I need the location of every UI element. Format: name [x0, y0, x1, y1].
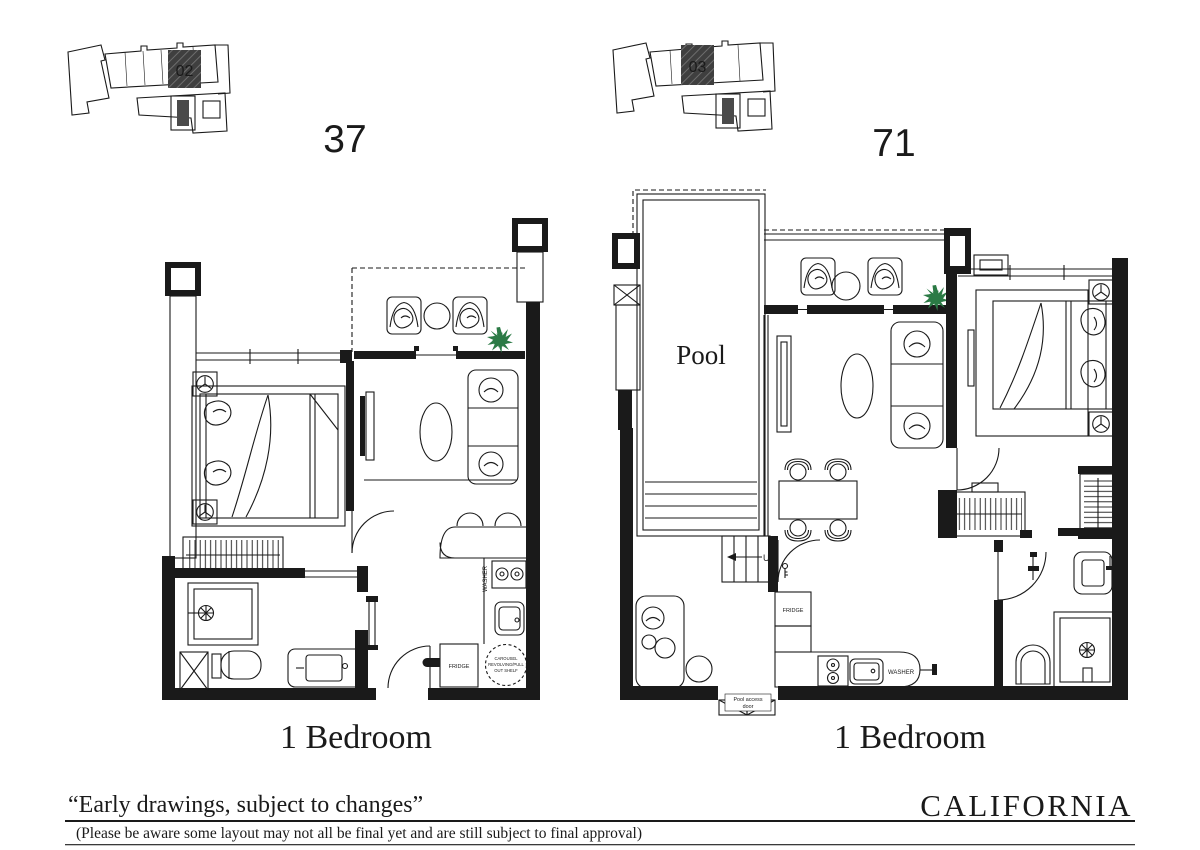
- plan-number-71: 71: [872, 122, 915, 165]
- wardrobe: [938, 466, 1118, 580]
- curtain-box: [974, 255, 1008, 275]
- pool-label: Pool: [676, 340, 726, 370]
- key-plan-left: 02 37: [68, 43, 367, 161]
- footer-disclaimer: (Please be aware some layout may not all…: [76, 825, 642, 842]
- bed: [200, 394, 338, 518]
- side-table: [686, 656, 712, 682]
- downlight-symbol: [1089, 412, 1113, 436]
- shower: [1054, 612, 1116, 688]
- kitchen: WASHER FRIDGE CAROUSEL REVOLVING/PULL OU…: [440, 513, 528, 687]
- fridge: FRIDGE: [775, 592, 811, 626]
- carousel-shelf-note: CAROUSEL REVOLVING/PULL OUT SHELF: [486, 645, 527, 686]
- balcony-chair: [868, 258, 902, 295]
- fridge-label: FRIDGE: [783, 608, 804, 614]
- wall-shelf: [968, 330, 974, 386]
- svg-text:CAROUSEL: CAROUSEL: [494, 656, 518, 661]
- walls-middle: [944, 270, 999, 538]
- dining-chair: [825, 520, 851, 541]
- vanity: [288, 649, 362, 687]
- toilet: [212, 651, 261, 679]
- pool-access-label: Pool access: [733, 697, 762, 703]
- fridge-label: FRIDGE: [449, 664, 470, 670]
- tv-console: [366, 392, 374, 460]
- floorplan-sheet: 02 37 03 71: [0, 0, 1200, 850]
- sofa: [891, 322, 943, 448]
- brand-logo: CALIFORNIA: [920, 788, 1133, 823]
- downlight-symbol: [1089, 280, 1113, 304]
- balcony: [764, 228, 971, 314]
- coffee-table: [420, 403, 452, 461]
- lounge: [636, 596, 712, 688]
- unit-number-label: 03: [689, 59, 707, 76]
- dining-set: [779, 459, 857, 541]
- kitchen: FRIDGE WASHER: [775, 592, 937, 687]
- shower: [188, 583, 258, 645]
- footer-quote: “Early drawings, subject to changes”: [68, 792, 423, 818]
- coffee-table: [841, 354, 873, 418]
- divider-line-bottom: [65, 844, 1135, 845]
- pool: Pool: [633, 190, 766, 536]
- balcony-table: [424, 303, 450, 329]
- vanity: [1074, 552, 1114, 594]
- building-outline: [68, 43, 230, 133]
- sofa: [468, 370, 518, 484]
- wall: [786, 686, 1128, 700]
- wall: [620, 686, 718, 700]
- washer: [492, 561, 526, 588]
- balcony-chair: [801, 258, 835, 295]
- footer: “Early drawings, subject to changes” (Pl…: [65, 788, 1135, 845]
- plan-title-right: 1 Bedroom: [834, 719, 986, 756]
- sink: [850, 659, 883, 684]
- washer-label: WASHER: [888, 670, 915, 676]
- shower-head-icon: [199, 606, 214, 621]
- balcony-table: [832, 272, 860, 300]
- bench: [972, 483, 998, 492]
- shower-head-icon: [1080, 643, 1095, 658]
- living-room: [764, 315, 943, 541]
- dining-chair: [825, 459, 851, 480]
- walls: [162, 218, 548, 700]
- downlight-symbol: [193, 372, 217, 396]
- balcony-chair: [453, 297, 487, 334]
- tv-panel: [360, 396, 365, 456]
- dining-chair: [785, 520, 811, 541]
- key-symbol: [783, 564, 788, 569]
- pool-access-door: Pool access door: [710, 686, 786, 715]
- tv-panel: [777, 336, 791, 432]
- unit-number-label: 02: [176, 63, 194, 80]
- floor-plan-37: WASHER FRIDGE CAROUSEL REVOLVING/PULL OU…: [162, 218, 548, 756]
- floorplan-drawing: 02 37 03 71: [0, 0, 1200, 850]
- plant-icon: [487, 327, 513, 353]
- pool-steps: [645, 482, 757, 518]
- sink: [495, 602, 524, 635]
- stool: [457, 513, 483, 526]
- bathroom: [180, 537, 362, 690]
- svg-text:REVOLVING/PULL: REVOLVING/PULL: [488, 662, 524, 667]
- toilet: [1016, 645, 1050, 684]
- downlight-symbol: [193, 500, 217, 524]
- stove: [818, 656, 848, 686]
- plan-number-37: 37: [323, 118, 366, 161]
- svg-text:OUT SHELF: OUT SHELF: [494, 668, 518, 673]
- stairs: UP: [722, 536, 820, 592]
- plan-title-left: 1 Bedroom: [280, 719, 432, 756]
- dining-table: [779, 481, 857, 519]
- bathroom: [994, 528, 1116, 692]
- balcony: [387, 297, 513, 353]
- stool: [495, 513, 521, 526]
- key-plan-right: 03 71: [613, 41, 916, 165]
- dining-chair: [785, 459, 811, 480]
- breakfast-counter: [440, 527, 528, 558]
- svg-text:door: door: [743, 704, 754, 710]
- floor-plan-71: Pool: [612, 190, 1128, 756]
- bed: [993, 301, 1113, 409]
- balcony-chair: [387, 297, 421, 334]
- fridge: FRIDGE: [440, 644, 478, 687]
- washer-label: WASHER: [483, 565, 489, 592]
- living-room: [420, 370, 518, 484]
